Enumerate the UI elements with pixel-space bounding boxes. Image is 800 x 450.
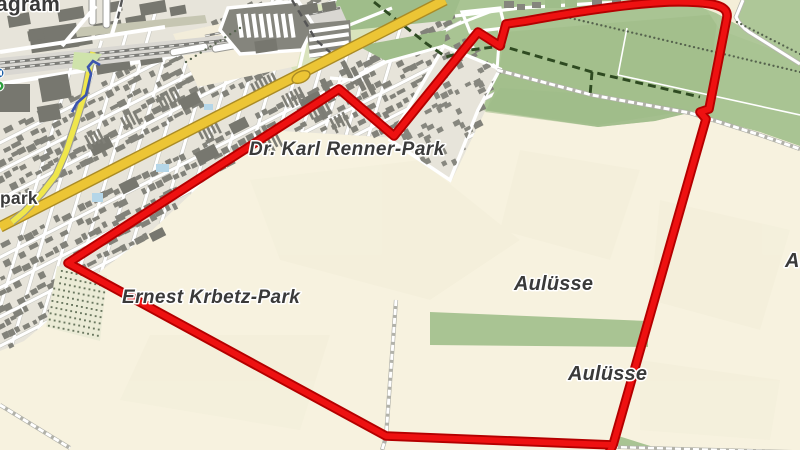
- svg-text:Dr. Karl Renner-Park: Dr. Karl Renner-Park: [249, 139, 446, 160]
- svg-text:Ernest Krbetz-Park: Ernest Krbetz-Park: [122, 287, 301, 308]
- svg-text:agram: agram: [0, 0, 60, 16]
- svg-text:Aulüsse: Aulüsse: [567, 363, 647, 385]
- svg-text:park: park: [0, 188, 38, 208]
- svg-text:Aulüsse: Aulüsse: [513, 273, 593, 295]
- svg-text:Au: Au: [784, 250, 800, 272]
